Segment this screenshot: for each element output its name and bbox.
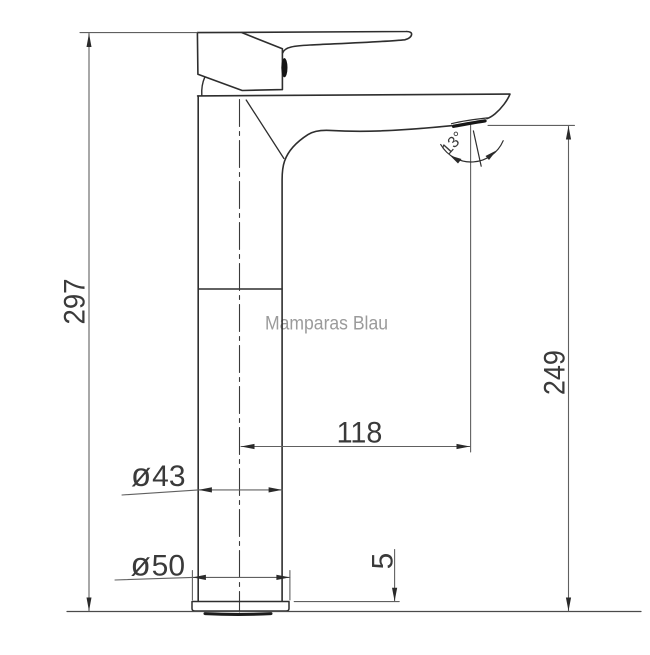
svg-text:249: 249: [539, 350, 572, 395]
svg-text:Mamparas Blau: Mamparas Blau: [265, 314, 388, 335]
svg-text:297: 297: [59, 279, 92, 325]
svg-text:118: 118: [337, 416, 383, 449]
svg-text:5: 5: [367, 553, 400, 570]
svg-text:ø50: ø50: [131, 546, 186, 583]
svg-text:ø43: ø43: [131, 456, 186, 493]
